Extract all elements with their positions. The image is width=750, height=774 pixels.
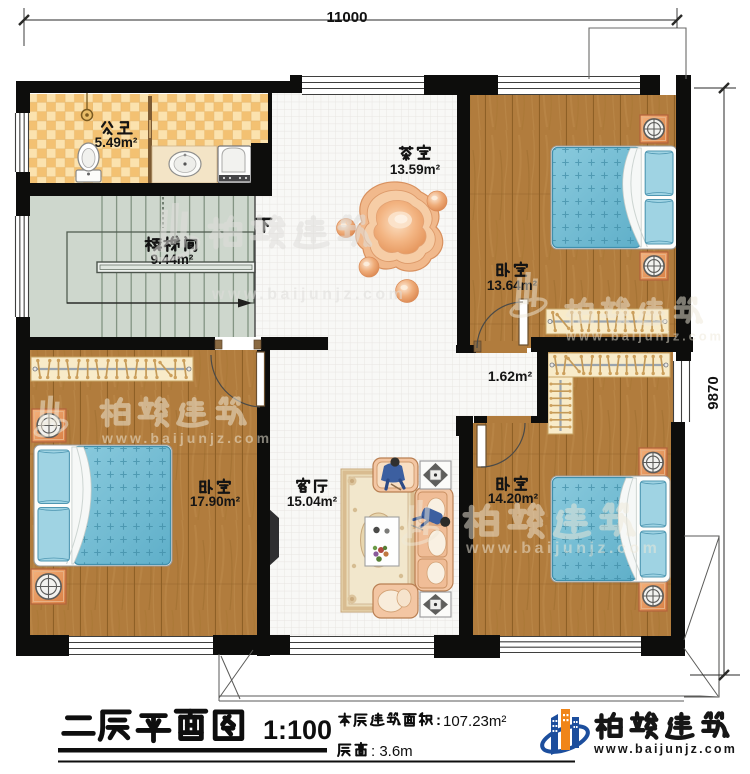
svg-text:www.baijunjz.com: www.baijunjz.com bbox=[565, 328, 724, 343]
svg-text:www.baijunjz.com: www.baijunjz.com bbox=[211, 286, 406, 303]
svg-text:15.04m²: 15.04m² bbox=[287, 494, 338, 509]
svg-text:107.23m²: 107.23m² bbox=[443, 713, 506, 730]
svg-text:: 3.6m: : 3.6m bbox=[371, 743, 413, 760]
svg-text:www.baijunjz.com: www.baijunjz.com bbox=[465, 540, 660, 557]
svg-text::: : bbox=[436, 712, 441, 729]
svg-text:5.49m²: 5.49m² bbox=[95, 135, 138, 150]
svg-text:www.baijunjz.com: www.baijunjz.com bbox=[593, 742, 737, 756]
svg-text:17.90m²: 17.90m² bbox=[190, 494, 241, 509]
svg-text:1.62m²: 1.62m² bbox=[488, 368, 533, 384]
svg-text:9870: 9870 bbox=[705, 376, 722, 409]
svg-text:13.59m²: 13.59m² bbox=[390, 162, 441, 177]
svg-text:www.baijunjz.com: www.baijunjz.com bbox=[101, 430, 272, 446]
svg-text:11000: 11000 bbox=[327, 9, 368, 26]
svg-text:1:100: 1:100 bbox=[263, 715, 332, 745]
